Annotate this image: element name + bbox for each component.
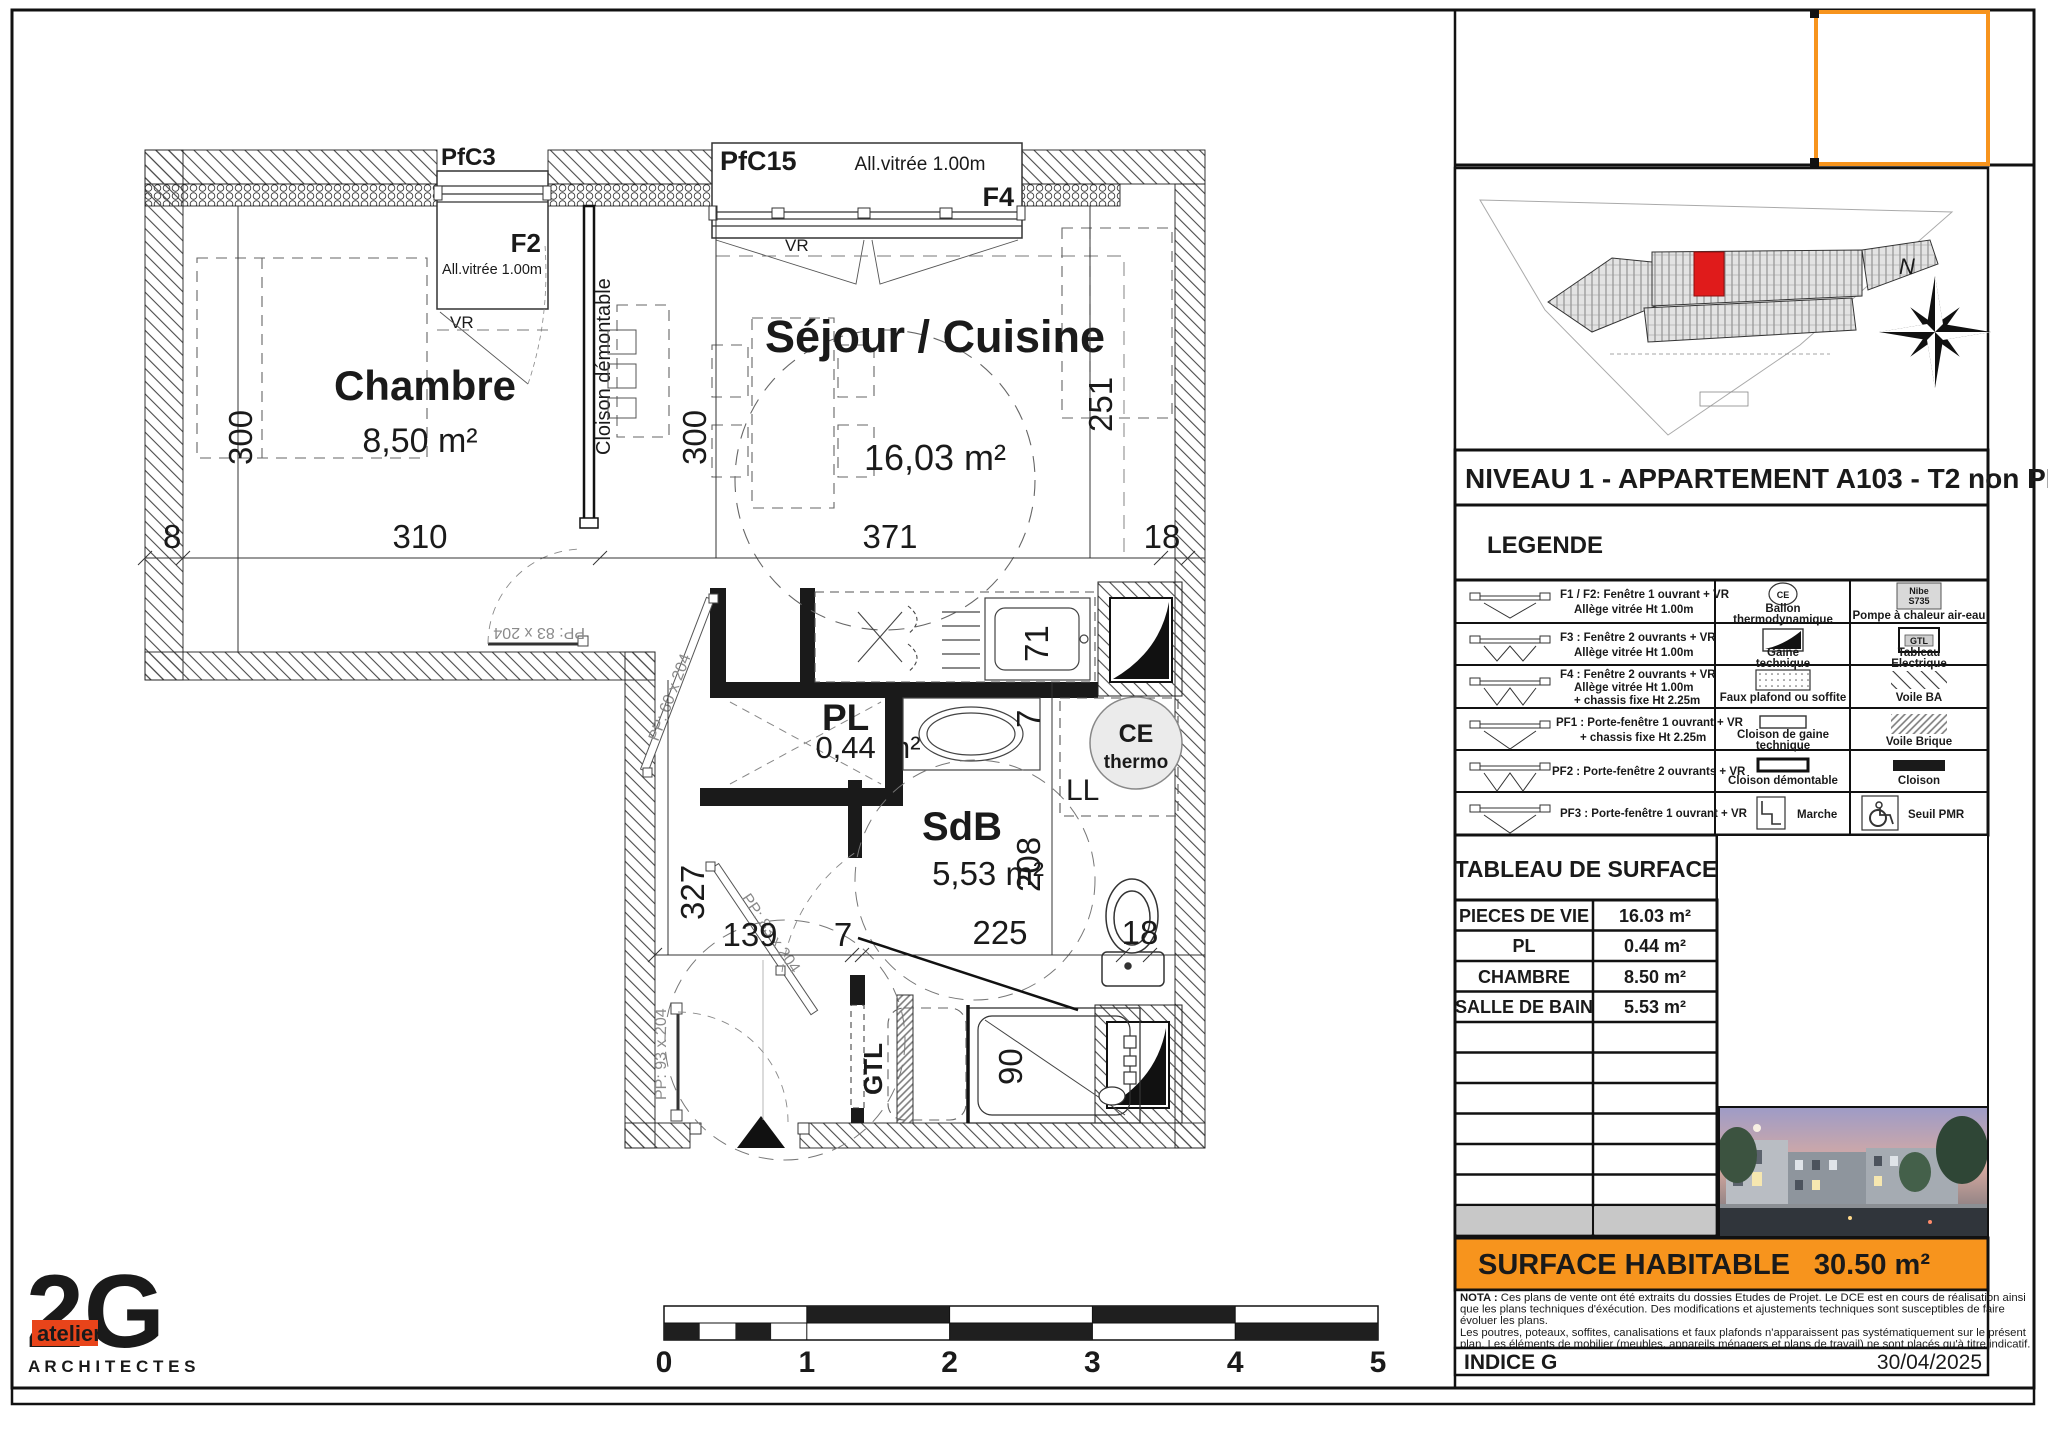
architect-logo: 2G atelier A R C H I T E C T E S [26, 1254, 196, 1376]
ce-label: CE [1119, 720, 1154, 748]
svg-text:Voile BA: Voile BA [1896, 692, 1942, 704]
highlighted-unit [1694, 252, 1724, 296]
pl-room-area: 0,44 m² [815, 730, 920, 765]
scale-label-0: 0 [656, 1346, 673, 1379]
svg-text:Marche: Marche [1797, 809, 1837, 821]
indice-label: INDICE G [1464, 1351, 1557, 1374]
dim-shower-90: 90 [992, 1048, 1029, 1085]
stove-icon [858, 606, 917, 672]
sink-icon [942, 598, 1090, 680]
voile-ba-icon [1891, 671, 1947, 689]
svg-text:Cloison: Cloison [1898, 775, 1940, 787]
cloison-gaine-icon [1760, 716, 1806, 728]
svg-text:Voile Brique: Voile Brique [1886, 736, 1952, 748]
cloison-demontable: Cloison démontable [580, 206, 615, 528]
gaine-technique-lower [1095, 1005, 1182, 1123]
scale-label-1: 1 [798, 1346, 815, 1379]
window-f2-code: F2 [511, 228, 541, 258]
svg-text:PF2 : Porte-fenêtre 2 ouvrants: PF2 : Porte-fenêtre 2 ouvrants + VR [1552, 766, 1746, 778]
sejour-room-area: 16,03 m² [864, 437, 1006, 478]
chambre-room-area: 8,50 m² [362, 422, 477, 460]
scale-label-5: 5 [1370, 1346, 1387, 1379]
surface-row-value: 8.50 m² [1624, 967, 1686, 987]
entry-door: PP: 93 x 204 [653, 1003, 788, 1122]
floor-plan: GTL Cloison démontable PfC3 [138, 143, 1205, 1160]
plan-sheet: GTL Cloison démontable PfC3 [0, 0, 2048, 1437]
window-f2: PfC3 F2 All.vitrée 1.00m VR [434, 144, 551, 384]
faux-plafond-icon [1756, 670, 1810, 690]
indice-date: 30/04/2025 [1877, 1351, 1982, 1374]
surface-habitable-value: 30.50 m² [1814, 1249, 1930, 1281]
ce-thermo-label: thermo [1104, 752, 1168, 773]
svg-text:Cloison démontable: Cloison démontable [1728, 775, 1838, 787]
scale-label-3: 3 [1084, 1346, 1101, 1379]
dim-7-wall: 7 [1010, 710, 1047, 728]
svg-text:GTL: GTL [1910, 636, 1928, 646]
dim-208: 208 [1010, 837, 1047, 892]
ce-thermo-unit: CE thermo [1090, 697, 1182, 789]
surface-row-value: 0.44 m² [1624, 936, 1686, 956]
cloison-icon [1893, 760, 1945, 771]
gtl-partition: GTL [851, 995, 913, 1123]
orange-corner-box [1810, 9, 1988, 167]
svg-text:TableauElectrique: TableauElectrique [1891, 647, 1947, 670]
scale-bar: 0 1 2 3 4 5 [656, 1306, 1387, 1379]
window-f4-code: F4 [982, 182, 1014, 212]
window-f4-vr: VR [785, 236, 809, 255]
pac-icon: Nibe S735 [1897, 583, 1941, 609]
svg-text:Nibe: Nibe [1909, 586, 1929, 596]
window-pfc3-tag: PfC3 [441, 144, 496, 171]
dim-18-top: 18 [1144, 518, 1181, 555]
chambre-door: PP: 83 x 204 [488, 549, 588, 646]
nota-block: NOTA : Ces plans de vente ont été extrai… [1455, 1290, 2030, 1350]
dim-18-bottom: 18 [1122, 914, 1159, 951]
dim-300-sejour: 300 [676, 410, 713, 465]
ballon-icon-text: CE [1777, 590, 1790, 600]
dim-8: 8 [163, 518, 181, 555]
surface-row-value: 16.03 m² [1619, 906, 1691, 926]
building-render [1717, 1107, 1988, 1237]
surface-habitable-label: SURFACE HABITABLE [1478, 1249, 1790, 1281]
window-pfc15-tag: PfC15 [720, 146, 797, 176]
indice-row: INDICE G 30/04/2025 [1455, 1348, 1988, 1375]
north-label: N [1899, 254, 1915, 279]
chambre-door-label: PP: 83 x 204 [493, 624, 585, 641]
site-plan: N [1455, 168, 1991, 450]
window-f2-allege: All.vitrée 1.00m [442, 262, 542, 278]
title-block: N NIVEAU 1 - APPARTEMENT A103 - T2 non P… [1455, 9, 2048, 1375]
dim-139: 139 [722, 916, 777, 953]
legend: LEGENDE F1 / F2: Fenêtre 1 ouvrant + VRA… [1455, 505, 1988, 835]
surface-table-heading: TABLEAU DE SURFACE [1455, 856, 1718, 882]
svg-text:F4 : Fenêtre 2 ouvrants + VRAl: F4 : Fenêtre 2 ouvrants + VRAllège vitré… [1560, 669, 1716, 707]
cloison-demontable-label: Cloison démontable [593, 278, 615, 455]
gaine-technique-upper [1098, 582, 1182, 696]
entrance-arrow-icon [737, 1116, 785, 1148]
dim-sink-71: 71 [1018, 625, 1055, 662]
logo-mark: 2G [26, 1254, 165, 1370]
washbasin-icon [903, 698, 1040, 770]
surface-row-label: PIECES DE VIE [1459, 906, 1589, 926]
ll-label: LL [1066, 774, 1099, 807]
title-box: NIVEAU 1 - APPARTEMENT A103 - T2 non PMR [1455, 450, 2048, 505]
dim-251: 251 [1082, 377, 1119, 432]
entry-door-label: PP: 93 x 204 [653, 1008, 670, 1100]
gtl-label: GTL [858, 1043, 888, 1095]
svg-text:Faux plafond ou soffite: Faux plafond ou soffite [1720, 692, 1847, 704]
sheet-title: NIVEAU 1 - APPARTEMENT A103 - T2 non PMR [1465, 463, 2048, 494]
svg-text:S735: S735 [1908, 596, 1929, 606]
surface-row-label: PL [1512, 936, 1535, 956]
dim-371: 371 [862, 518, 917, 555]
surface-row-label: CHAMBRE [1478, 967, 1570, 987]
kitchen-counter: 71 [815, 592, 1095, 682]
scale-label-2: 2 [941, 1346, 958, 1379]
logo-sub: A R C H I T E C T E S [28, 1357, 196, 1376]
svg-text:Pompe à chaleur air-eau: Pompe à chaleur air-eau [1853, 610, 1986, 622]
dim-7-bottom: 7 [834, 916, 852, 953]
surface-row-label: SALLE DE BAIN [1455, 997, 1593, 1017]
cloison-demontable-icon [1758, 759, 1808, 771]
marche-icon [1757, 797, 1785, 829]
drawing-svg: GTL Cloison démontable PfC3 [0, 0, 2048, 1437]
svg-text:PF3 : Porte-fenêtre 1 ouvrant: PF3 : Porte-fenêtre 1 ouvrant + VR [1560, 808, 1748, 820]
sejour-room-name: Séjour / Cuisine [765, 311, 1105, 362]
chambre-room-name: Chambre [334, 362, 516, 409]
surface-row-value: 5.53 m² [1624, 997, 1686, 1017]
scale-label-4: 4 [1227, 1346, 1244, 1379]
voile-brique-icon [1891, 714, 1947, 734]
svg-text:Seuil PMR: Seuil PMR [1908, 809, 1965, 821]
surface-habitable-banner: SURFACE HABITABLE 30.50 m² [1455, 1238, 1988, 1290]
dim-310: 310 [392, 518, 447, 555]
logo-atelier: atelier [37, 1321, 102, 1346]
seuil-pmr-icon [1862, 796, 1898, 830]
dim-225: 225 [972, 914, 1027, 951]
sdb-room-name: SdB [922, 805, 1002, 849]
window-f4-allege: All.vitrée 1.00m [855, 154, 986, 175]
legend-heading: LEGENDE [1487, 532, 1603, 559]
dim-327: 327 [674, 865, 711, 920]
dim-300-chambre: 300 [222, 410, 259, 465]
